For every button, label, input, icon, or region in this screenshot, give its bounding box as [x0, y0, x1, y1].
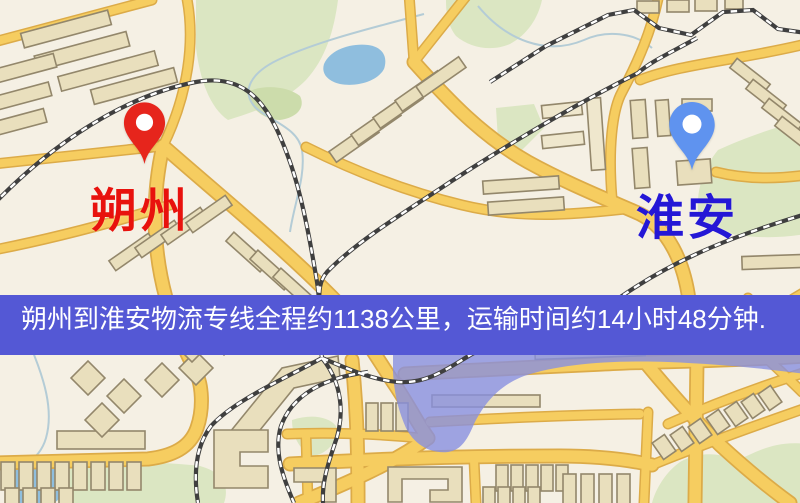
basemap — [0, 0, 800, 503]
origin-city-label: 朔州 — [90, 172, 190, 241]
destination-marker-pin-icon[interactable] — [666, 100, 718, 173]
route-info-text: 朔州到淮安物流专线全程约1138公里，运输时间约14小时48分钟. — [21, 304, 766, 334]
origin-marker-pin-icon[interactable] — [121, 100, 168, 167]
map-viewport[interactable]: 朔州到淮安物流专线全程约1138公里，运输时间约14小时48分钟. 朔州 淮安 — [0, 0, 800, 503]
route-info-banner: 朔州到淮安物流专线全程约1138公里，运输时间约14小时48分钟. — [0, 295, 800, 355]
destination-city-label: 淮安 — [636, 178, 738, 248]
